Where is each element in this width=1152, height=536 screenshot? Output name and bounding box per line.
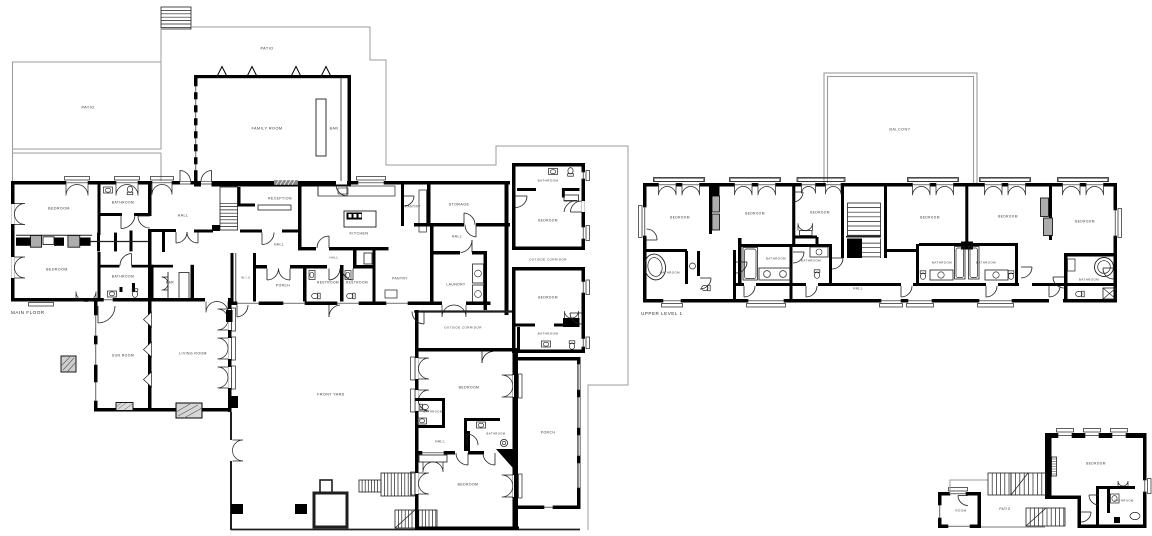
svg-text:UPPER LEVEL 1: UPPER LEVEL 1 <box>641 311 683 316</box>
svg-text:BEDROOM: BEDROOM <box>745 212 765 216</box>
svg-text:BEDROOM: BEDROOM <box>538 296 558 300</box>
svg-text:BATHROOM: BATHROOM <box>112 201 134 205</box>
svg-text:MAIN FLOOR: MAIN FLOOR <box>11 310 45 315</box>
svg-text:BATHROOM: BATHROOM <box>538 332 559 336</box>
svg-text:ROOM: ROOM <box>955 509 966 513</box>
svg-text:HALL: HALL <box>329 256 338 260</box>
svg-text:HALL: HALL <box>452 235 462 239</box>
svg-text:FAMILY ROOM: FAMILY ROOM <box>252 127 283 131</box>
svg-text:W.I.C: W.I.C <box>241 276 251 280</box>
svg-text:BEDROOM: BEDROOM <box>458 483 479 487</box>
svg-text:BEDROOM: BEDROOM <box>48 207 70 211</box>
svg-text:PATIO: PATIO <box>260 47 273 51</box>
svg-text:BALCONY: BALCONY <box>889 128 910 132</box>
svg-text:BEDROOM: BEDROOM <box>538 219 558 223</box>
svg-text:BEDROOM: BEDROOM <box>1086 462 1106 466</box>
svg-text:HALL: HALL <box>853 287 863 291</box>
svg-text:BEDROOM: BEDROOM <box>920 216 940 220</box>
svg-text:PORCH: PORCH <box>541 431 556 435</box>
svg-text:BAR: BAR <box>166 281 174 285</box>
svg-text:HALL: HALL <box>178 214 189 218</box>
svg-text:BAR: BAR <box>330 127 339 131</box>
svg-text:LIVING ROOM: LIVING ROOM <box>179 352 207 356</box>
svg-text:PANTRY: PANTRY <box>392 277 408 281</box>
svg-text:BEDROOM: BEDROOM <box>1075 220 1095 224</box>
svg-text:BATHROOM: BATHROOM <box>932 261 952 265</box>
svg-text:BATHROOM: BATHROOM <box>424 410 443 414</box>
svg-text:BATHROOM: BATHROOM <box>1079 278 1099 282</box>
svg-text:SUN ROOM: SUN ROOM <box>112 354 134 358</box>
svg-text:BATHROOM: BATHROOM <box>538 179 559 183</box>
svg-text:BATHROOM: BATHROOM <box>487 432 506 436</box>
svg-text:RESTROOM: RESTROOM <box>346 281 368 285</box>
svg-text:BEDROOM: BEDROOM <box>459 386 480 390</box>
svg-text:BATHROOM: BATHROOM <box>112 275 134 279</box>
svg-text:BEDROOM: BEDROOM <box>998 215 1018 219</box>
svg-text:KITCHEN: KITCHEN <box>350 232 369 236</box>
svg-text:PATIO: PATIO <box>999 507 1010 511</box>
svg-text:LAUNDRY: LAUNDRY <box>446 283 466 287</box>
svg-text:HALL: HALL <box>274 243 284 247</box>
svg-text:RECEPTION: RECEPTION <box>268 197 292 201</box>
svg-text:FRONT YARD: FRONT YARD <box>317 393 344 397</box>
svg-text:BATHROOM: BATHROOM <box>660 271 680 275</box>
svg-text:BEDROOM: BEDROOM <box>670 216 690 220</box>
svg-text:OUTSIDE CORRIDOR: OUTSIDE CORRIDOR <box>529 258 567 262</box>
svg-text:PATIO: PATIO <box>81 106 94 110</box>
svg-text:HALL: HALL <box>435 440 445 444</box>
svg-text:OUTSIDE CORRIDOR: OUTSIDE CORRIDOR <box>444 326 482 330</box>
svg-text:BEDROOM: BEDROOM <box>810 211 830 215</box>
svg-text:BEDROOM: BEDROOM <box>46 268 68 272</box>
svg-text:PORCH: PORCH <box>276 284 290 288</box>
svg-text:BATHROOM: BATHROOM <box>801 259 821 263</box>
svg-text:BATHROOM: BATHROOM <box>766 257 786 261</box>
svg-text:STORAGE: STORAGE <box>449 203 470 207</box>
svg-text:RESTROOM: RESTROOM <box>317 281 339 285</box>
svg-text:BATHROOM: BATHROOM <box>1114 499 1134 503</box>
